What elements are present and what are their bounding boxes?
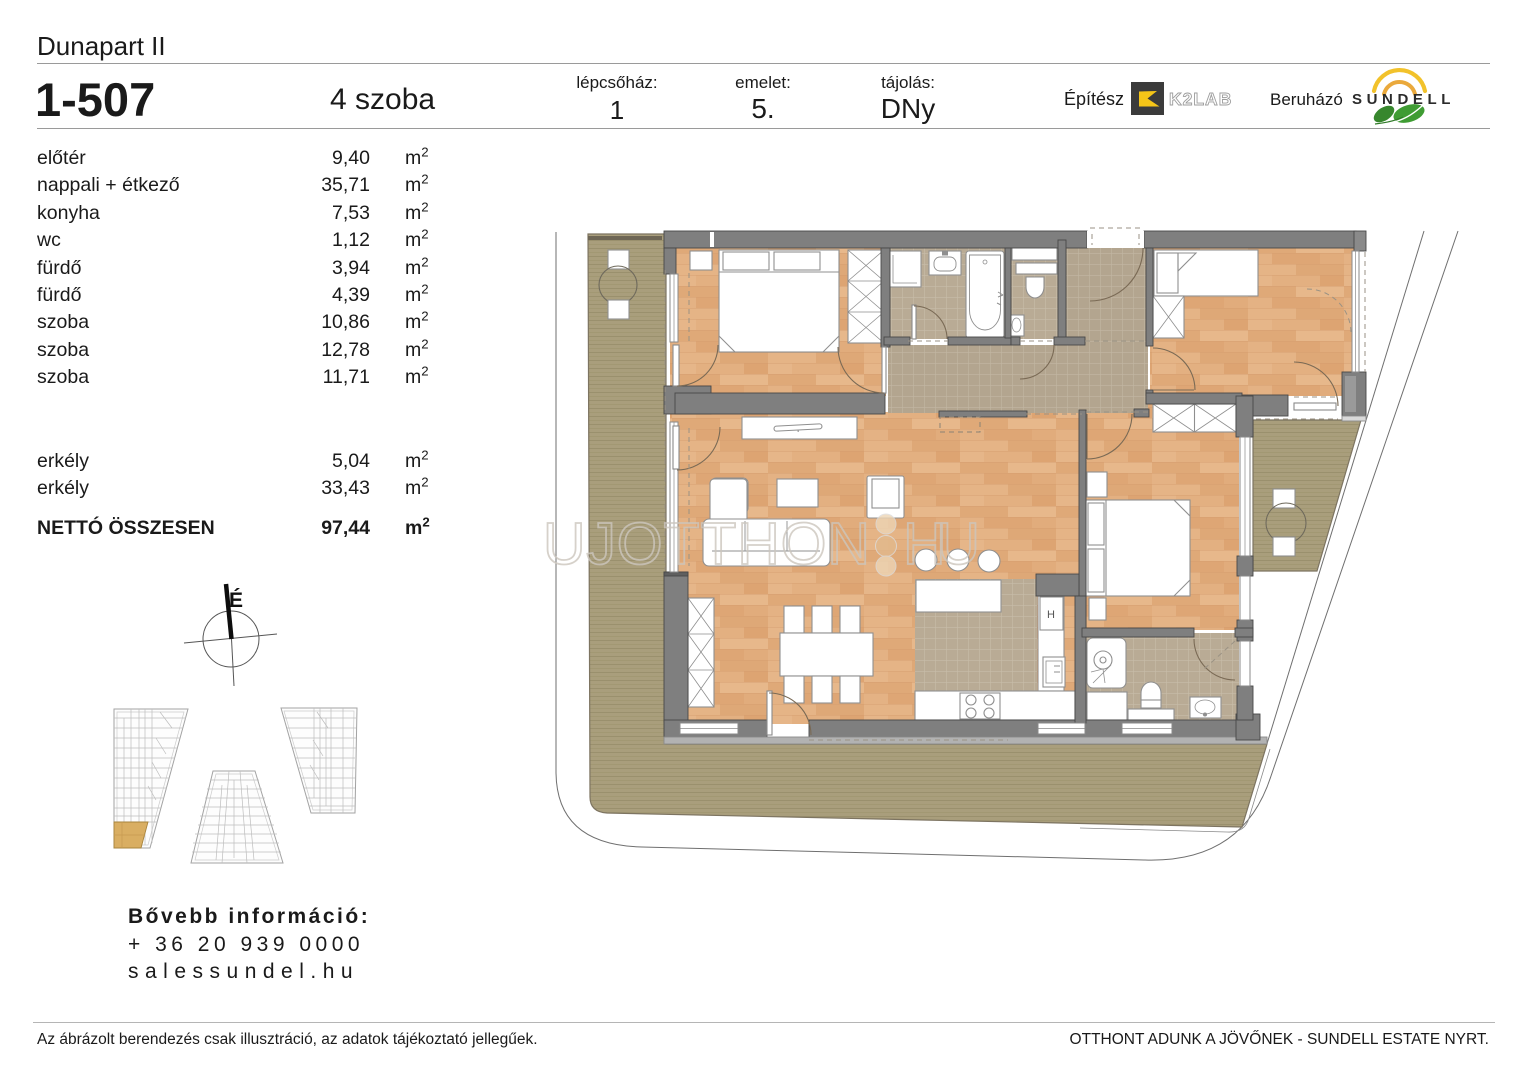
svg-text:K2LAB: K2LAB: [1169, 89, 1232, 109]
svg-text:HU: HU: [903, 511, 983, 577]
svg-text:UJOTTHON: UJOTTHON: [543, 511, 873, 577]
svg-text:SUNDELL: SUNDELL: [1352, 91, 1455, 108]
svg-text:H: H: [1047, 609, 1055, 621]
svg-text:É: É: [229, 589, 243, 612]
